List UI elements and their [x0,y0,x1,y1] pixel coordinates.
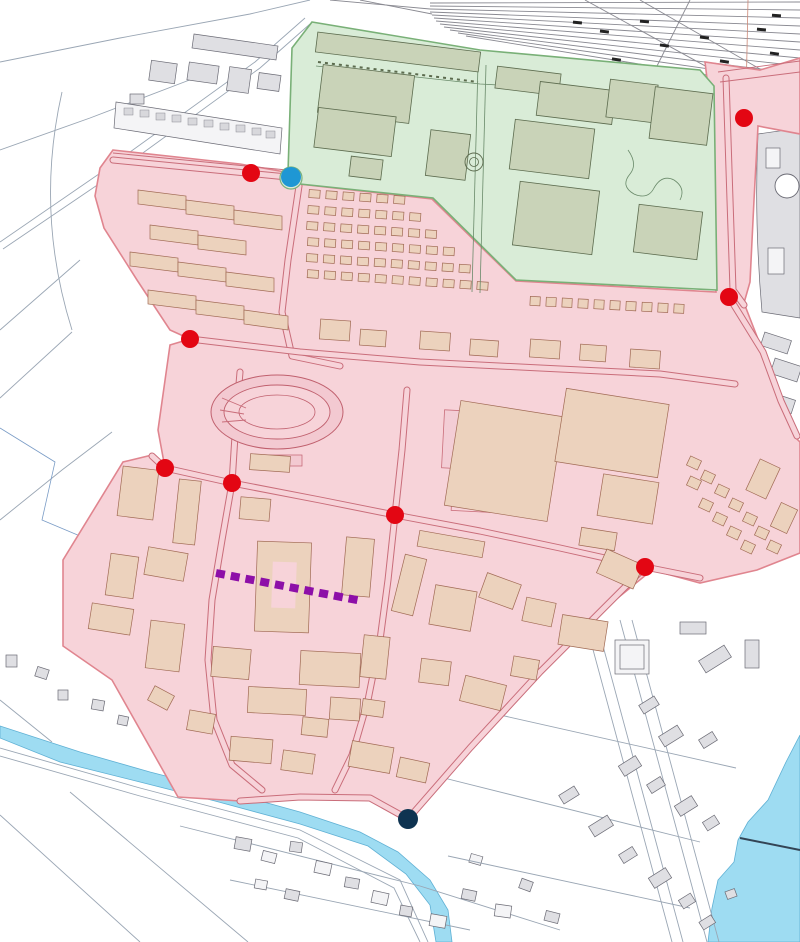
red-junction-marker-4[interactable] [181,330,199,348]
city-plan-map[interactable] [0,0,800,942]
navy-point-marker-1[interactable] [398,809,418,829]
map-viewport[interactable] [0,0,800,942]
red-junction-marker-7[interactable] [386,506,404,524]
red-junction-marker-8[interactable] [636,558,654,576]
blue-point-marker-1[interactable] [281,167,301,187]
red-junction-marker-6[interactable] [223,474,241,492]
red-junction-marker-1[interactable] [242,164,260,182]
red-junction-marker-2[interactable] [735,109,753,127]
red-junction-marker-3[interactable] [720,288,738,306]
red-junction-marker-5[interactable] [156,459,174,477]
